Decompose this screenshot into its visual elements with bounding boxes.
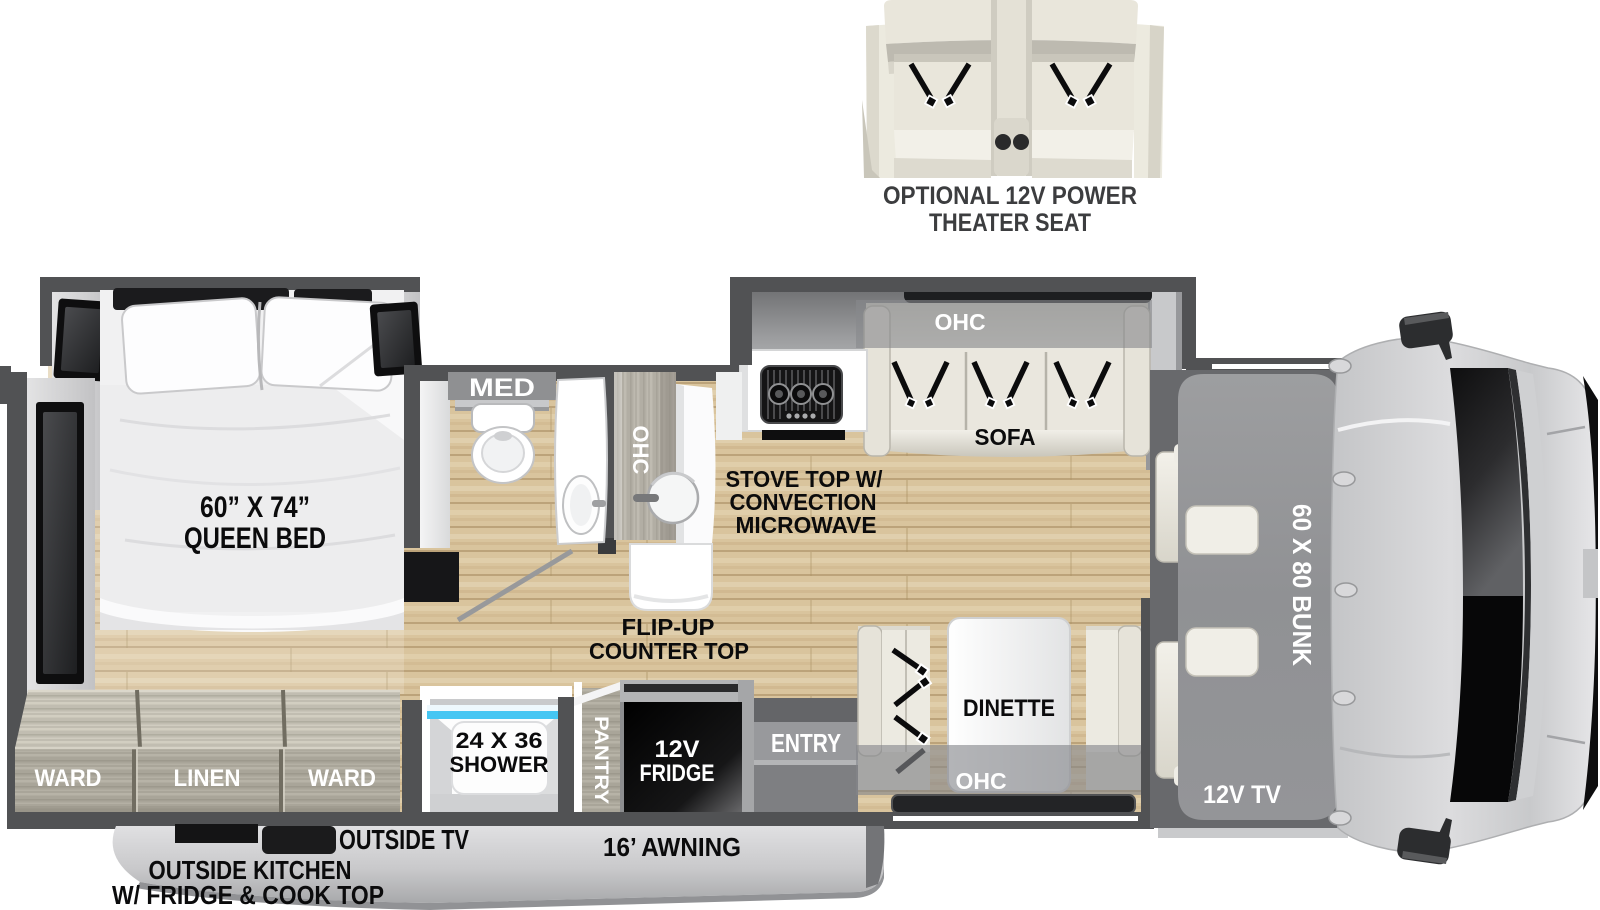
svg-text:QUEEN BED: QUEEN BED: [184, 522, 326, 555]
svg-text:LINEN: LINEN: [174, 765, 241, 792]
svg-text:60 X 80 BUNK: 60 X 80 BUNK: [1287, 504, 1317, 666]
svg-text:WARD: WARD: [35, 765, 102, 792]
svg-text:OUTSIDE TV: OUTSIDE TV: [339, 824, 469, 855]
svg-text:ENTRY: ENTRY: [771, 728, 841, 758]
svg-text:FRIDGE: FRIDGE: [640, 760, 715, 787]
svg-text:OHC: OHC: [934, 309, 985, 335]
svg-text:OHC: OHC: [955, 768, 1006, 794]
svg-text:MED: MED: [469, 374, 535, 402]
svg-text:OHC: OHC: [628, 426, 653, 475]
svg-text:60” X 74”: 60” X 74”: [200, 491, 310, 524]
svg-text:12V TV: 12V TV: [1203, 781, 1281, 809]
svg-text:16’ AWNING: 16’ AWNING: [603, 832, 741, 862]
svg-text:WARD: WARD: [308, 765, 376, 792]
svg-text:DINETTE: DINETTE: [963, 695, 1055, 722]
svg-text:SHOWER: SHOWER: [450, 752, 549, 777]
svg-text:THEATER SEAT: THEATER SEAT: [929, 209, 1091, 237]
svg-text:PANTRY: PANTRY: [590, 716, 611, 804]
svg-text:MICROWAVE: MICROWAVE: [736, 512, 877, 538]
svg-text:COUNTER TOP: COUNTER TOP: [589, 638, 749, 664]
svg-text:12V: 12V: [655, 736, 700, 763]
svg-text:SOFA: SOFA: [975, 424, 1036, 450]
svg-text:OPTIONAL 12V POWER: OPTIONAL 12V POWER: [883, 182, 1137, 210]
svg-text:W/ FRIDGE & COOK TOP: W/ FRIDGE & COOK TOP: [112, 880, 384, 910]
svg-text:24 X 36: 24 X 36: [456, 728, 543, 753]
svg-text:FLIP-UP: FLIP-UP: [622, 614, 715, 640]
